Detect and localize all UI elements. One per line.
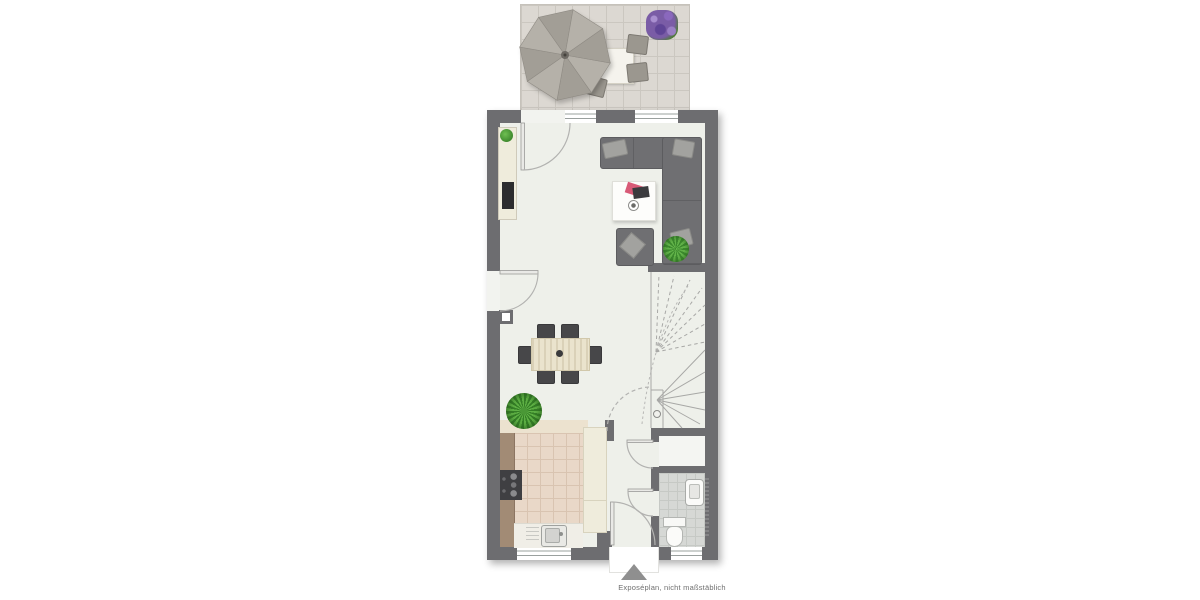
vertical-watermark (705, 478, 709, 538)
patio-chair (626, 34, 649, 55)
side-door-opening (487, 271, 500, 311)
sofa-cushion (672, 138, 696, 158)
table-centerpiece (556, 350, 563, 357)
dining-chair (537, 369, 555, 384)
potted-plant (663, 236, 689, 262)
stove (500, 470, 522, 500)
faucet (559, 532, 563, 536)
dining-chair (561, 324, 579, 339)
dining-chair (537, 324, 555, 339)
dining-chair (561, 369, 579, 384)
interior-wall (597, 531, 612, 547)
kitchen-window (517, 547, 571, 560)
kitchen-floor (514, 433, 583, 523)
interior-wall (651, 436, 659, 442)
sink-drainer (526, 527, 539, 543)
potted-plant (506, 393, 542, 429)
dining-chair (588, 346, 602, 364)
floor-plan-canvas: Exposéplan, nicht maßstäblich (0, 0, 1200, 600)
tv (502, 182, 514, 209)
bathroom-window (671, 547, 702, 560)
patio-chair (626, 62, 649, 83)
interior-wall (651, 428, 705, 436)
tall-cabinets (583, 427, 607, 533)
washbasin-bowl (689, 484, 700, 499)
under-stair-niche (659, 436, 705, 466)
window (565, 110, 596, 123)
plan-caption: Exposéplan, nicht maßstäblich (612, 583, 732, 592)
sink-bowl (545, 528, 560, 543)
interior-wall (651, 516, 659, 547)
interior-wall (651, 467, 659, 491)
magazine (632, 186, 649, 199)
entrance-arrow-icon (621, 564, 647, 580)
column (499, 310, 513, 324)
parasol-icon (517, 7, 613, 103)
dining-chair (518, 346, 532, 364)
cup (628, 200, 639, 211)
window (635, 110, 678, 123)
terrace-door-opening (521, 110, 565, 123)
interior-wall (659, 466, 705, 473)
small-plant (500, 129, 513, 142)
lavender-planter (646, 10, 678, 40)
toilet (666, 526, 683, 547)
